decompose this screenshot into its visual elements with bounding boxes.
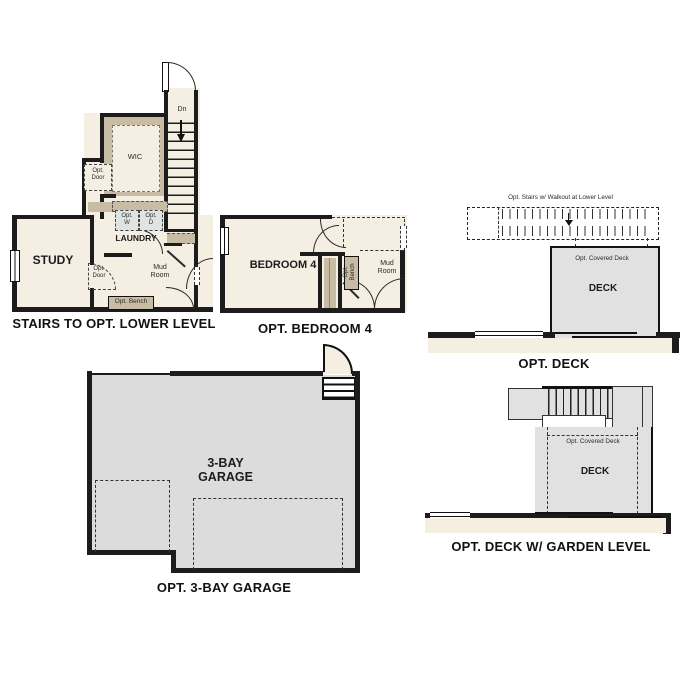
stairs-landing <box>508 388 546 420</box>
wall <box>104 253 132 257</box>
bedroom4-label: BEDROOM 4 <box>228 259 338 272</box>
wall <box>355 371 360 573</box>
stairs-landing-right <box>612 386 653 430</box>
stairs-dn-label: Dn <box>170 106 194 114</box>
stairs-edge-line <box>642 386 643 428</box>
door-arc <box>167 62 196 91</box>
study-label: STUDY <box>22 254 84 268</box>
wall <box>164 229 198 232</box>
plan-title: OPT. DECK <box>428 356 680 371</box>
wall <box>87 371 92 555</box>
floorplan-sheet: Dn WIC Opt. Door <box>0 0 687 687</box>
dashed-wall <box>360 250 404 251</box>
plan-opt-3bay-garage: 3-BAY GARAGE OPT. 3-BAY GARAGE <box>87 344 361 600</box>
opt-door-box: Opt. Door <box>84 164 112 191</box>
dashed-opening <box>400 226 407 248</box>
opt-stairs-note: Opt. Stairs w/ Walkout at Lower Level <box>463 194 658 201</box>
opt-washer-box: Opt. W <box>115 210 139 231</box>
opt-dryer-box: Opt. D <box>139 210 163 231</box>
wall <box>164 243 182 246</box>
wall <box>90 219 94 265</box>
door-leaf-dashed <box>343 219 344 247</box>
wall <box>170 371 323 376</box>
deck-label: DECK <box>575 283 631 295</box>
stairs-treads-dashed <box>502 209 652 219</box>
laundry-label: LAUNDRY <box>108 234 164 244</box>
plan-title: OPT. DECK W/ GARDEN LEVEL <box>425 539 677 554</box>
plan-title: OPT. BEDROOM 4 <box>220 321 410 336</box>
garage-label: 3-BAY GARAGE <box>163 456 288 485</box>
deck-label: DECK <box>570 466 620 478</box>
stairs-arrow-head <box>177 134 185 142</box>
plan-title: OPT. 3-BAY GARAGE <box>87 580 361 595</box>
opt-door-label: Opt. Door <box>86 266 112 280</box>
opt-door-label: Opt. Door <box>85 168 111 182</box>
house-interior-strip <box>428 338 672 353</box>
covered-deck-label: Opt. Covered Deck <box>543 438 643 445</box>
sliding-door <box>555 332 637 335</box>
opt-bench: Opt. Bench <box>108 296 154 310</box>
deck: Opt. Covered Deck DECK <box>550 246 660 340</box>
stairs-treads-dashed <box>502 226 652 236</box>
wall <box>12 215 17 250</box>
opt-bench-label: Opt. Bench <box>343 257 357 287</box>
opt-washer-label: Opt. W <box>116 213 138 227</box>
wall <box>100 113 104 163</box>
wall <box>90 288 94 307</box>
wall <box>100 113 168 117</box>
wall <box>222 215 332 219</box>
stairs-arrow-head <box>565 220 573 226</box>
wall <box>338 256 342 308</box>
wic-label: WIC <box>112 153 158 162</box>
plan-opt-bedroom4: Opt. Bench BEDROOM 4 Mud Room OPT. BEDRO… <box>220 213 410 338</box>
entry-steps <box>322 377 356 400</box>
house-wall-corner <box>671 332 679 353</box>
dashed-wall <box>332 217 405 218</box>
window <box>10 250 20 282</box>
plan-title: STAIRS TO OPT. LOWER LEVEL <box>8 316 220 331</box>
door-leaf <box>323 344 325 372</box>
opt-bay-outline <box>193 498 343 570</box>
plan-opt-deck-garden: Opt. Covered Deck DECK OPT. DECK W/ GARD… <box>425 380 677 558</box>
covered-deck-label: Opt. Covered Deck <box>554 255 650 262</box>
opt-dryer-label: Opt. D <box>140 213 162 227</box>
sliding-door <box>535 512 613 515</box>
door-arc <box>323 344 353 374</box>
opt-bench-label: Opt. Bench <box>109 298 153 305</box>
stairs-landing-divider <box>498 207 499 238</box>
plan-opt-deck: Opt. Stairs w/ Walkout at Lower Level Op… <box>428 190 680 374</box>
deck-dashed-edge <box>547 435 638 436</box>
opt-bay-outline <box>95 480 170 552</box>
mudroom-label: Mud Room <box>368 260 406 276</box>
house-interior-strip <box>425 518 666 533</box>
plan-stairs-lower-level: Dn WIC Opt. Door <box>8 68 220 336</box>
mudroom-label: Mud Room <box>138 264 182 280</box>
wall-thin <box>88 373 173 375</box>
wall <box>12 215 94 219</box>
window <box>220 227 229 255</box>
